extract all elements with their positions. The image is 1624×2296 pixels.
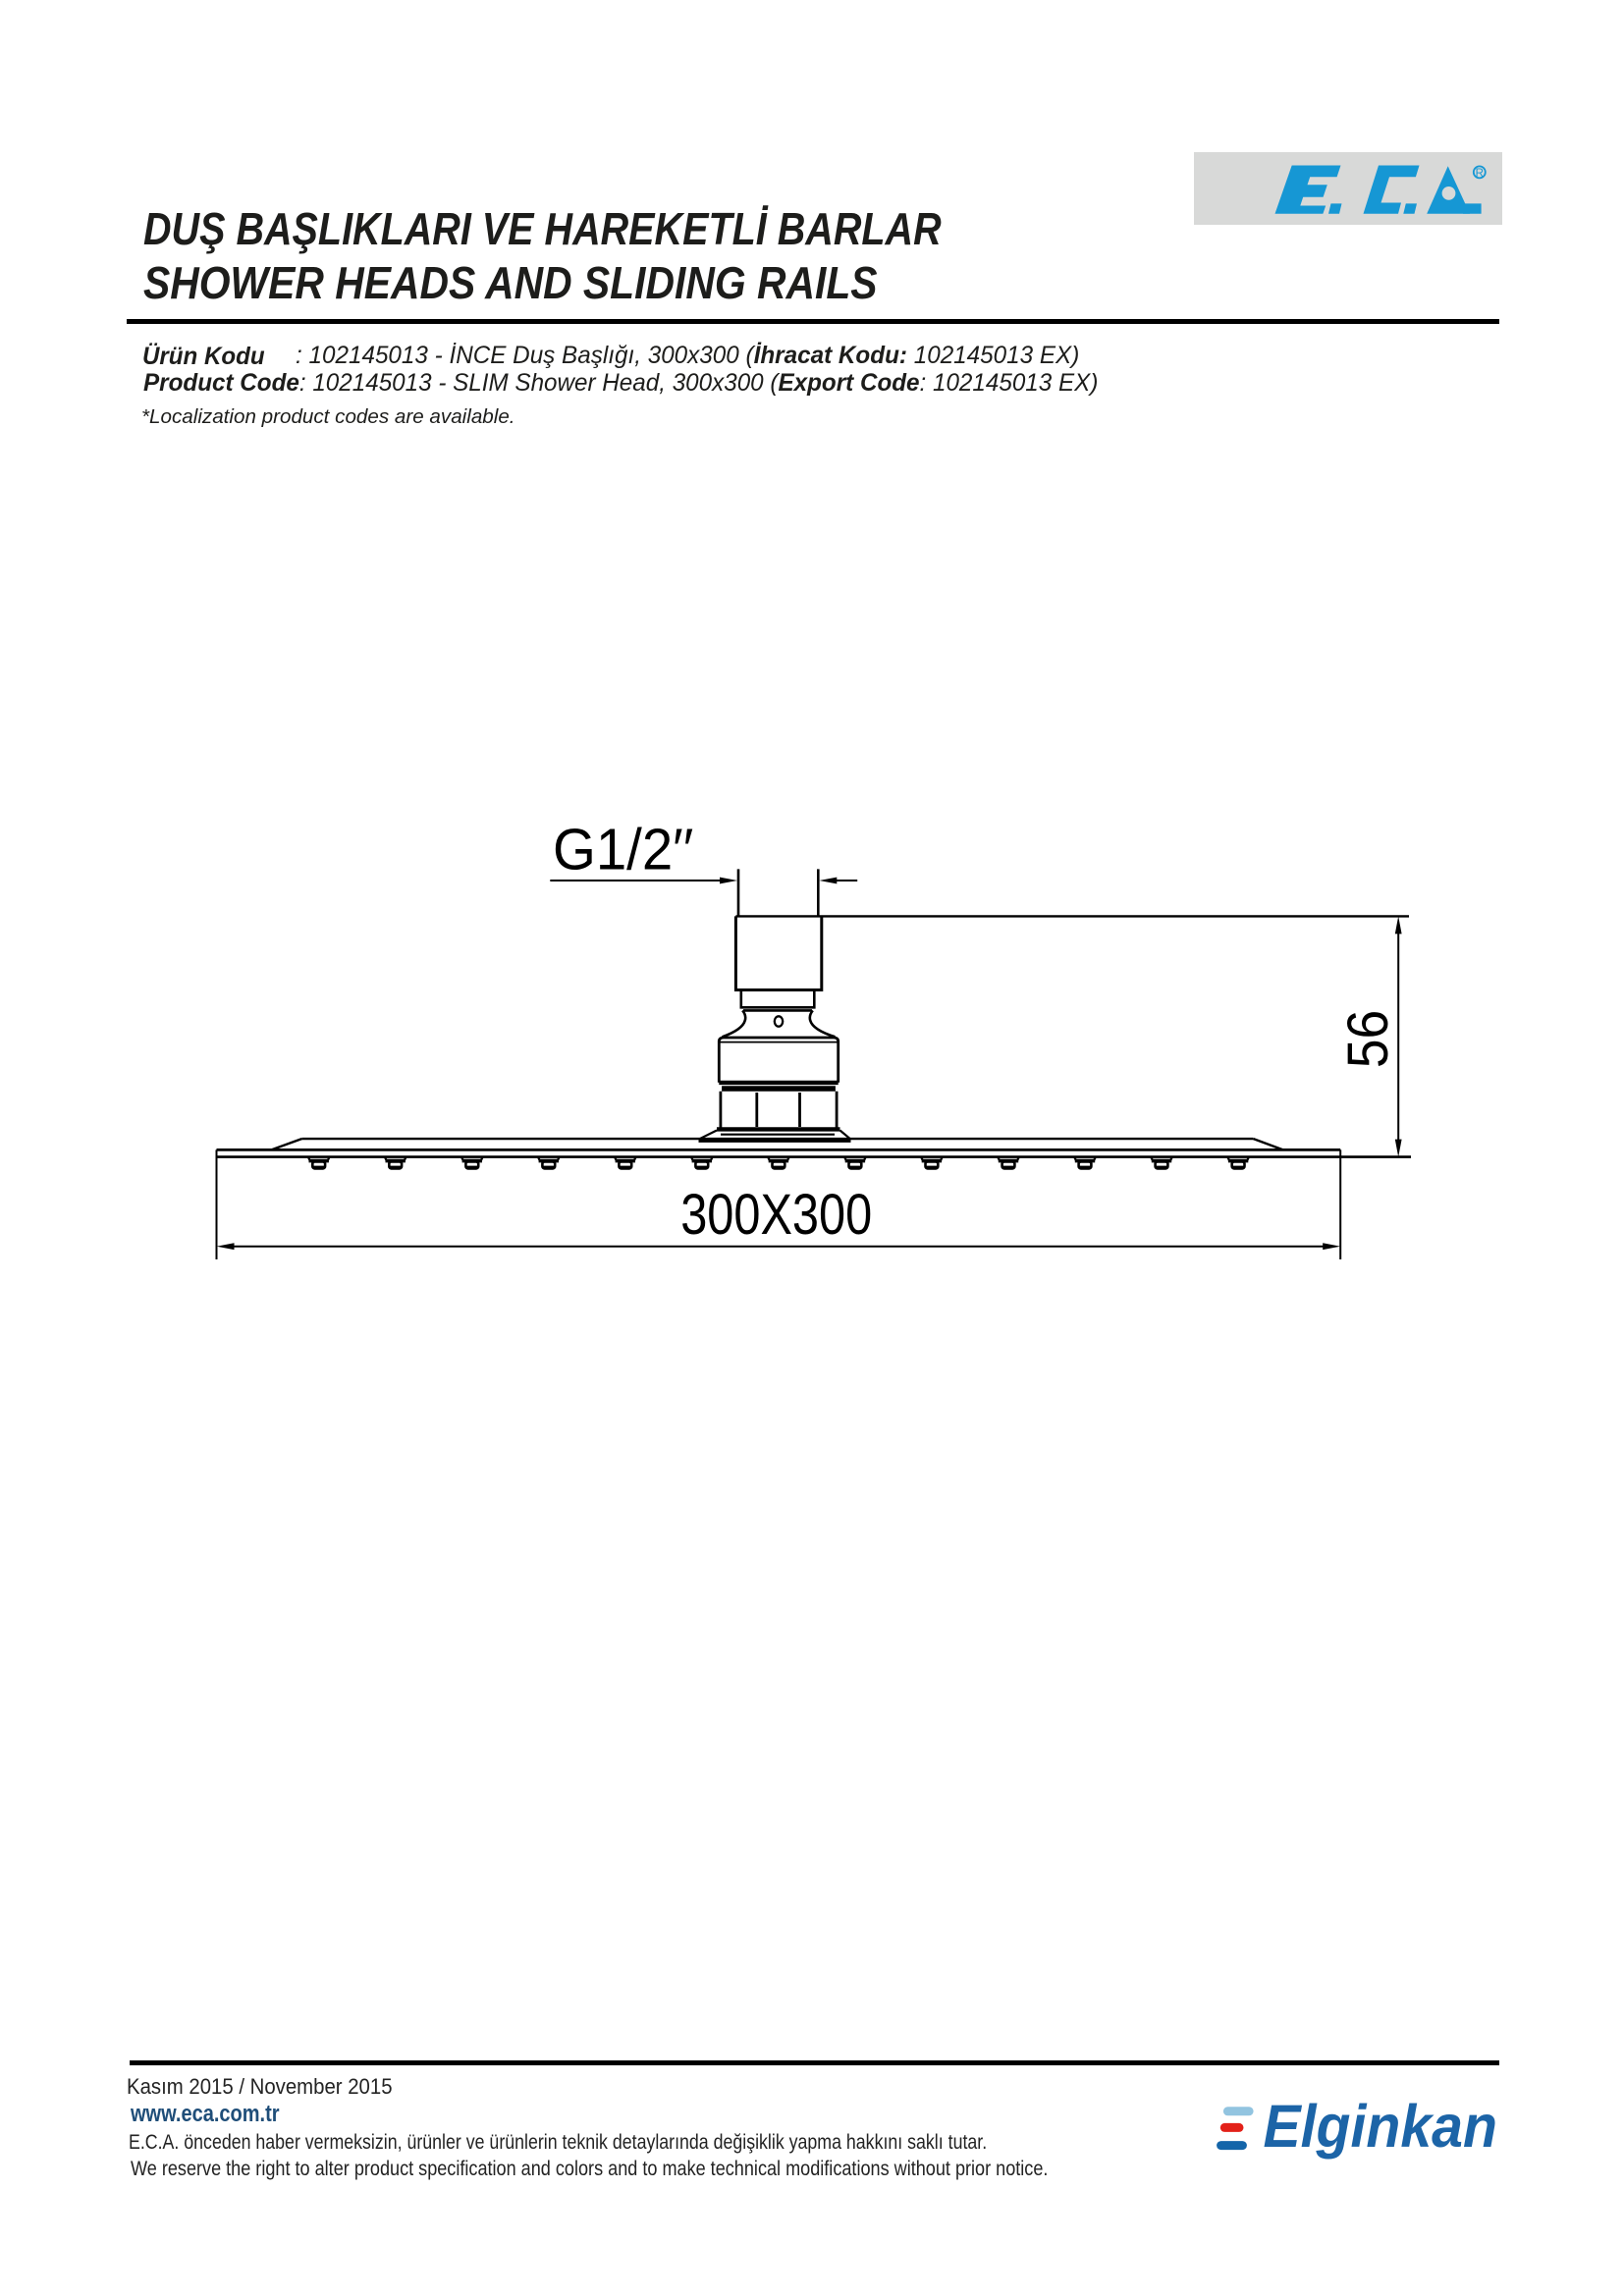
svg-text:Elginkan: Elginkan bbox=[1264, 2096, 1497, 2160]
svg-text:G1/2′′: G1/2′′ bbox=[553, 818, 693, 881]
svg-text:R: R bbox=[1476, 168, 1484, 180]
svg-text:56: 56 bbox=[1336, 1010, 1400, 1068]
svg-text:300X300: 300X300 bbox=[680, 1184, 872, 1247]
